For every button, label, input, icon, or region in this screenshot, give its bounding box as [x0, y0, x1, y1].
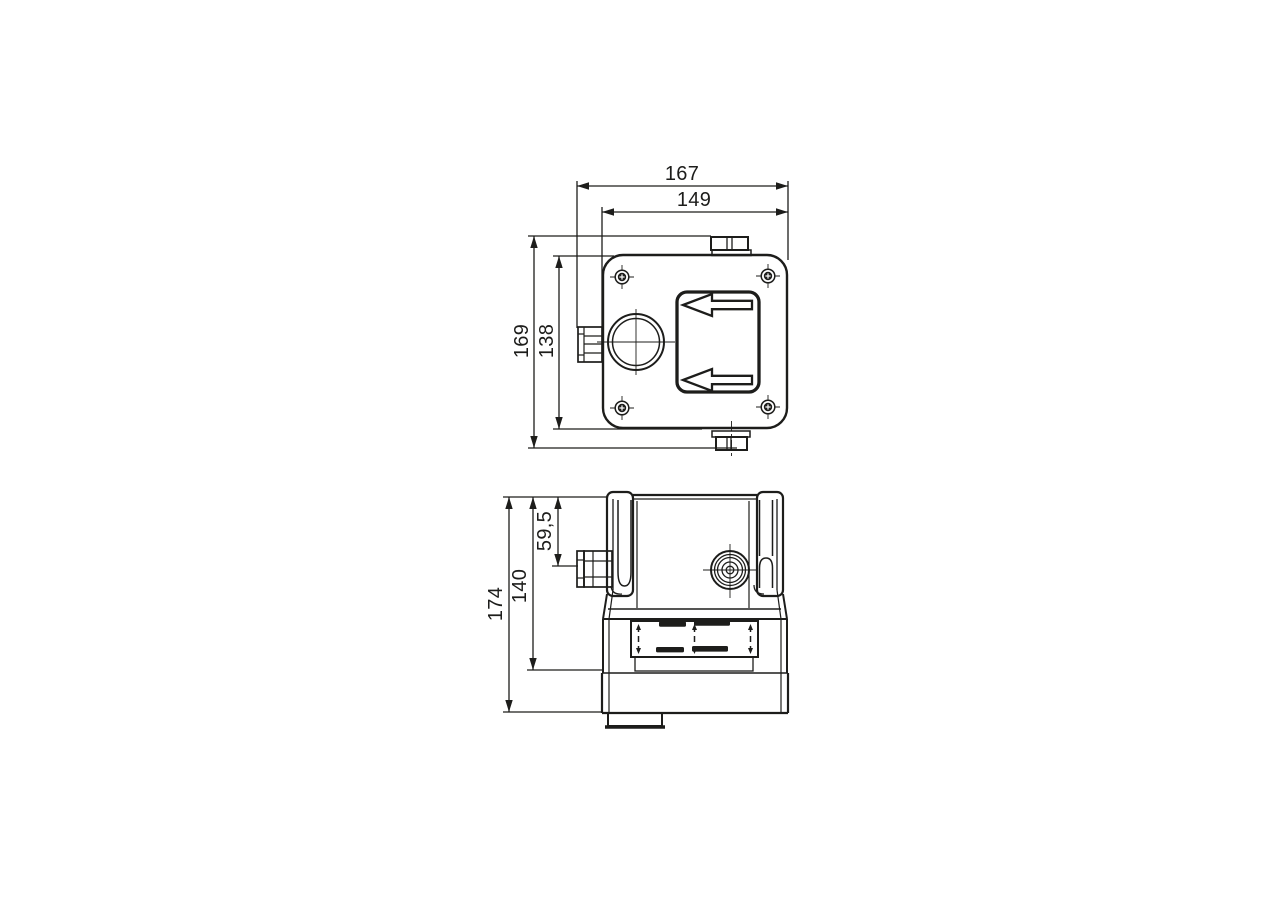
plate-text-bar: [659, 622, 686, 627]
arrowhead: [530, 236, 537, 248]
nut-body: [711, 237, 748, 250]
dim-label-169: 169: [511, 324, 533, 358]
side-view: 174 140 59,5: [485, 492, 788, 727]
arrowhead: [505, 497, 512, 509]
plate-mark-arrow: [748, 624, 753, 630]
arrowhead: [529, 658, 536, 670]
screw-icon: [756, 395, 780, 419]
bracket-outline: [607, 492, 633, 596]
arrowhead: [776, 182, 788, 189]
foot-outline: [608, 713, 662, 726]
arrowhead: [505, 700, 512, 712]
plate-lower-strip: [635, 657, 753, 671]
dim-label-174: 174: [485, 587, 507, 621]
left-bracket: [607, 492, 633, 596]
arrowhead: [776, 208, 788, 215]
arrowhead: [577, 182, 589, 189]
dim-label-59-5: 59,5: [534, 511, 556, 551]
dim-side-gland-offset: 59,5: [534, 497, 578, 566]
screw-icon: [610, 396, 634, 420]
right-bracket: [754, 492, 783, 596]
left-connector: [578, 327, 602, 362]
taper-line: [603, 594, 607, 619]
technical-drawing: 167 149 169 138: [0, 0, 1280, 900]
screw-icon: [756, 264, 780, 288]
plate-mark-arrow: [636, 648, 641, 654]
screw-icon: [610, 265, 634, 289]
dim-side-base-height: 140: [509, 497, 604, 670]
arrowhead: [602, 208, 614, 215]
flow-arrow-icon: [683, 369, 752, 391]
arrowhead: [530, 436, 537, 448]
flow-arrow-panel: [677, 292, 759, 392]
bracket-slot: [618, 500, 631, 586]
plate-mark-arrow: [748, 648, 753, 654]
bracket-outline: [757, 492, 783, 596]
taper-line: [783, 594, 787, 619]
plate-text-bar: [656, 647, 684, 652]
drawing-canvas: 167 149 169 138: [0, 0, 1280, 900]
gland-flange: [577, 551, 584, 587]
flow-arrow-icon: [683, 294, 752, 316]
arrowhead: [554, 497, 561, 509]
bottom-pipe-fitting: [712, 421, 750, 458]
plate-mark-arrow: [636, 624, 641, 630]
top-pipe-fitting: [711, 237, 751, 256]
foot: [605, 713, 665, 727]
base-section: [602, 673, 788, 713]
arrowhead: [529, 497, 536, 509]
dim-label-167: 167: [665, 163, 699, 185]
dim-label-149: 149: [677, 189, 711, 211]
round-port: [597, 309, 675, 375]
name-plate: [631, 621, 758, 672]
bracket-thumb: [760, 558, 773, 588]
arrowhead: [555, 256, 562, 268]
plate-text-bar: [692, 646, 728, 652]
plate-text-bar: [694, 621, 730, 626]
top-view: 167 149 169 138: [511, 163, 788, 458]
dim-overall-width: 167: [577, 163, 788, 328]
dim-label-140: 140: [509, 569, 531, 603]
dim-label-138: 138: [536, 324, 558, 358]
arrowhead: [555, 417, 562, 429]
arrowhead: [554, 554, 561, 566]
